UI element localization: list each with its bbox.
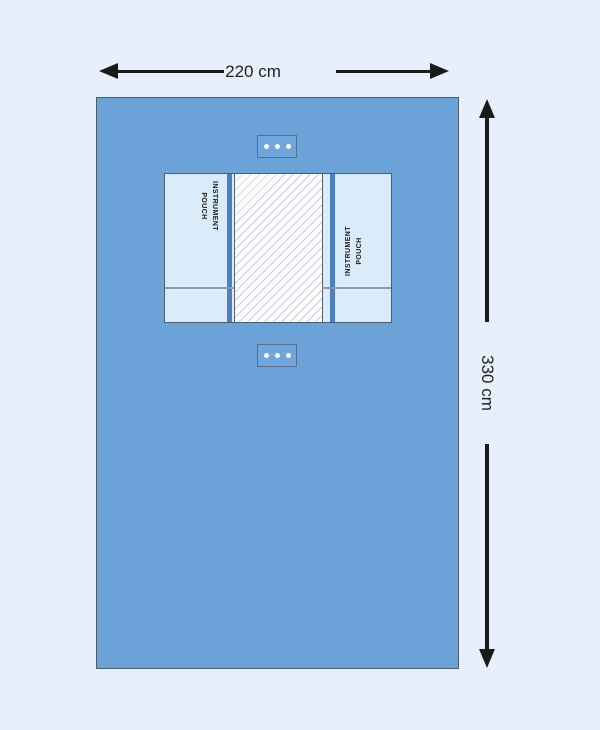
arrow-down-icon [479,649,495,668]
pouch-strip-right [323,174,331,322]
drape-diagram: 220 cm 330 cm INSTRUMENT POUCH INSTRUMEN… [0,0,600,730]
pouch-label-left-line1: INSTRUMENT [209,181,220,231]
tab-dot [264,144,269,149]
pouch-band: INSTRUMENT POUCH INSTRUMENT POUCH [164,173,392,323]
pouch-label-right-line1: INSTRUMENT [343,226,354,276]
tab-dot [286,144,291,149]
width-label: 220 cm [225,62,281,82]
fenestration-hatch-area [234,174,323,322]
pouch-divider-right [322,287,391,289]
pouch-label-left-line2: POUCH [198,181,209,231]
height-label: 330 cm [477,355,497,411]
adhesive-tab-top [257,135,297,158]
arrow-right-icon [430,63,449,79]
pouch-label-right-line2: POUCH [354,226,365,276]
height-line-top [485,115,489,322]
tab-dot [275,144,280,149]
width-line-left [115,70,224,74]
height-line-bottom [485,444,489,652]
pouch-label-left: INSTRUMENT POUCH [198,181,220,231]
pouch-divider-left [165,287,234,289]
tab-dot [286,353,291,358]
tab-dot [264,353,269,358]
adhesive-tab-bottom [257,344,297,367]
width-line-right [336,70,432,74]
tab-dot [275,353,280,358]
pouch-label-right: INSTRUMENT POUCH [343,226,365,276]
